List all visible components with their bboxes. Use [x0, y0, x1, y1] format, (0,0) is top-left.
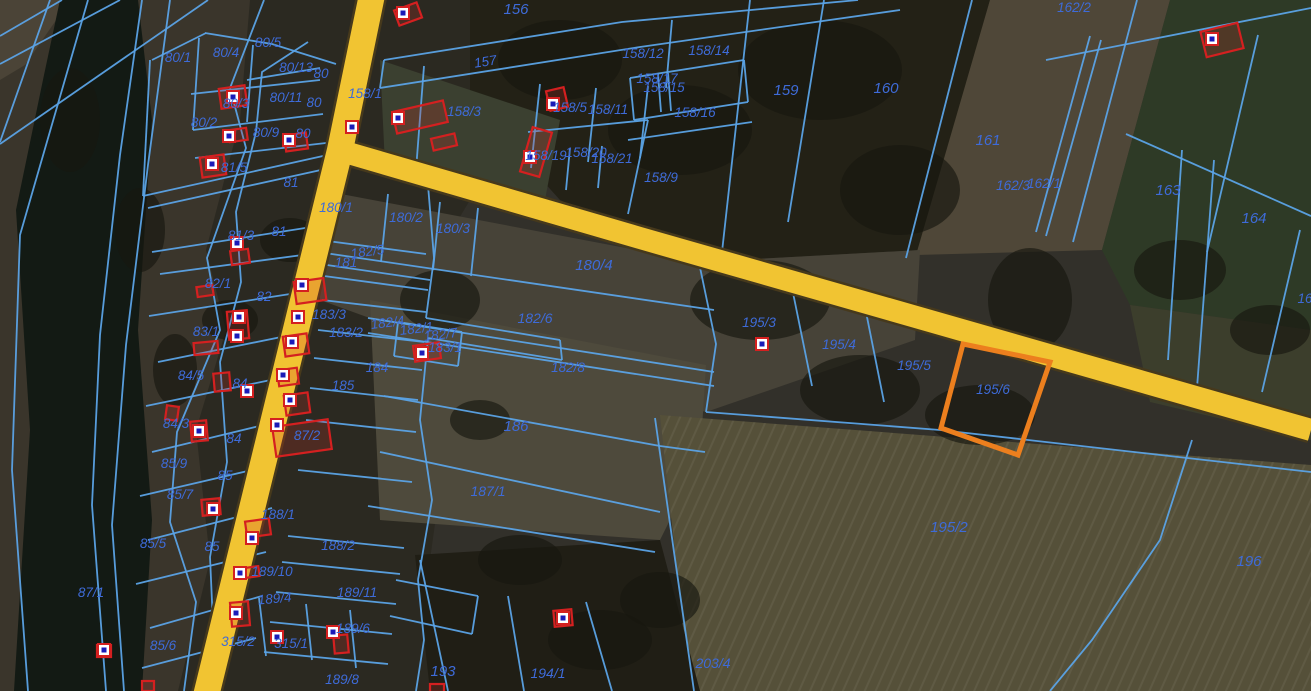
building-marker-icon[interactable]	[756, 338, 768, 350]
map-canvas[interactable]: 156157158/1158/3158/5158/11158/12158/141…	[0, 0, 1311, 691]
building-marker-icon[interactable]	[193, 425, 205, 437]
building-outline	[430, 684, 444, 691]
parcel-label: 189/10	[251, 564, 293, 579]
parcel-label: 80	[295, 126, 311, 141]
marker-dot	[350, 125, 355, 130]
building-marker-icon[interactable]	[557, 612, 569, 624]
parcel-label: 195/2	[930, 519, 968, 536]
building-marker-icon[interactable]	[1206, 33, 1218, 45]
marker-dot	[290, 340, 295, 345]
parcel-label: 315/1	[274, 636, 308, 651]
parcel-label: 80	[306, 95, 322, 110]
marker-dot	[288, 398, 293, 403]
terrain-patch	[660, 415, 1311, 691]
building-marker-icon[interactable]	[397, 7, 409, 19]
parcel-label: 84	[226, 431, 241, 446]
parcel-label: 87/1	[78, 585, 104, 600]
marker-dot	[300, 283, 305, 288]
parcel-label: 83/1	[193, 324, 219, 339]
marker-dot	[250, 536, 255, 541]
parcel-label: 159	[773, 82, 799, 99]
parcel-label: 84/3	[163, 416, 190, 431]
building-marker-icon[interactable]	[416, 347, 428, 359]
tree-blob	[738, 20, 902, 120]
parcel-label: 80/11	[270, 90, 303, 105]
parcel-label: 162/2	[1057, 0, 1091, 15]
building-outline	[230, 249, 250, 265]
parcel-label: 195/5	[897, 358, 931, 373]
building-marker-icon[interactable]	[292, 311, 304, 323]
building-marker-icon[interactable]	[296, 279, 308, 291]
parcel-label: 87/2	[294, 428, 321, 443]
parcel-label: 156	[503, 1, 529, 18]
parcel-label: 182/8	[551, 360, 585, 375]
parcel-label: 189/4	[257, 590, 292, 608]
parcel-label: 188/2	[321, 538, 355, 553]
parcel-label: 203/4	[694, 655, 730, 671]
tree-blob	[840, 145, 960, 235]
parcel-label: 180/3	[436, 221, 470, 236]
parcel-label: 80/13	[279, 60, 313, 75]
parcel-label: 158/16	[674, 105, 716, 120]
parcel-label: 158/19	[525, 148, 567, 163]
tree-blob	[1134, 240, 1226, 300]
parcel-label: 80/4	[213, 45, 239, 60]
building-marker-icon[interactable]	[206, 158, 218, 170]
parcel-label: 160	[873, 80, 899, 97]
building-marker-icon[interactable]	[284, 394, 296, 406]
parcel-label: 186	[503, 418, 529, 435]
parcel-label: 189/6	[336, 621, 370, 636]
parcel-label: 188/1	[261, 507, 295, 522]
parcel-label: 80/9	[253, 125, 280, 140]
parcel-label: 193	[430, 663, 456, 680]
building-marker-icon[interactable]	[234, 567, 246, 579]
parcel-label: 85	[217, 468, 233, 483]
parcel-label: 183/1	[428, 340, 462, 355]
parcel-label: 163	[1155, 182, 1181, 199]
marker-dot	[561, 616, 566, 621]
building-outline	[194, 341, 219, 355]
parcel-label: 85	[204, 539, 220, 554]
parcel-label: 85/7	[167, 487, 194, 502]
parcel-label: 162/3	[996, 178, 1030, 193]
building-marker-icon[interactable]	[230, 607, 242, 619]
parcel-label: 158/21	[591, 151, 632, 166]
parcel-label: 80/2	[191, 115, 218, 130]
marker-dot	[227, 134, 232, 139]
parcel-label: 194/1	[530, 665, 565, 681]
parcel-label: 315/2	[221, 634, 255, 649]
parcel-label: 82/1	[205, 276, 231, 291]
parcel-label: 80/5	[255, 35, 282, 50]
parcel-label: 158/15	[643, 80, 685, 95]
building-marker-icon[interactable]	[207, 503, 219, 515]
parcel-label: 84	[232, 376, 247, 391]
parcel-label: 158/9	[644, 170, 678, 185]
building-marker-icon[interactable]	[392, 112, 404, 124]
building-marker-icon[interactable]	[286, 336, 298, 348]
building-marker-icon[interactable]	[233, 311, 245, 323]
parcel-label: 180/2	[389, 210, 423, 225]
parcel-label: 158/12	[622, 46, 664, 61]
parcel-label: 158/3	[447, 104, 481, 119]
parcel-label: 180/4	[575, 257, 613, 274]
marker-dot	[234, 611, 239, 616]
parcel-label: 80/3	[223, 96, 250, 111]
parcel-label: 158/11	[588, 102, 628, 117]
building-marker-icon[interactable]	[223, 130, 235, 142]
marker-dot	[237, 315, 242, 320]
marker-dot	[1210, 37, 1215, 42]
marker-dot	[210, 162, 215, 167]
parcel-label: 184	[366, 360, 389, 375]
marker-dot	[396, 116, 401, 121]
parcel-label: 158/1	[348, 86, 382, 101]
parcel-label: 16	[1297, 291, 1311, 306]
building-marker-icon[interactable]	[271, 419, 283, 431]
parcel-label: 189/11	[337, 585, 377, 600]
parcel-label: 195/6	[976, 382, 1010, 397]
marker-dot	[275, 423, 280, 428]
parcel-label: 187/1	[470, 483, 505, 499]
parcel-label: 182/6	[517, 310, 552, 326]
marker-dot	[102, 648, 107, 653]
building-marker-icon[interactable]	[231, 330, 243, 342]
building-outline	[213, 372, 231, 391]
parcel-label: 162/1	[1027, 176, 1061, 191]
marker-dot	[296, 315, 301, 320]
marker-dot	[238, 571, 243, 576]
marker-dot	[211, 507, 216, 512]
parcel-label: 183/3	[312, 307, 346, 322]
marker-dot	[401, 11, 406, 16]
marker-dot	[287, 138, 292, 143]
marker-dot	[281, 373, 286, 378]
parcel-label: 81	[271, 224, 286, 239]
parcel-label: 164	[1241, 210, 1266, 227]
tree-blob	[450, 400, 510, 440]
marker-dot	[197, 429, 202, 434]
parcel-label: 158/5	[553, 100, 587, 115]
marker-dot	[760, 342, 765, 347]
parcel-label: 85/9	[161, 456, 188, 471]
parcel-label: 185	[332, 378, 355, 393]
parcel-label: 158/14	[688, 43, 729, 58]
parcel-label: 180/1	[319, 200, 353, 215]
parcel-label: 80/1	[165, 50, 191, 65]
parcel-label: 82	[256, 289, 272, 304]
parcel-label: 195/4	[822, 337, 856, 352]
marker-dot	[420, 351, 425, 356]
parcel-label: 189/8	[325, 672, 359, 687]
parcel-label: 195/3	[742, 315, 776, 330]
tree-blob	[40, 68, 100, 172]
parcel-label: 85/5	[140, 536, 167, 551]
parcel-label: 84/5	[178, 368, 205, 383]
parcel-label: 85/6	[150, 638, 177, 653]
tree-blob	[620, 572, 700, 628]
building-marker-icon[interactable]	[346, 121, 358, 133]
map-svg: 156157158/1158/3158/5158/11158/12158/141…	[0, 0, 1311, 691]
tree-blob	[478, 535, 562, 585]
marker-dot	[235, 334, 240, 339]
building-outline	[142, 681, 154, 691]
building-marker-icon[interactable]	[98, 644, 110, 656]
parcel-label: 81/5	[221, 160, 248, 175]
building-marker-icon[interactable]	[246, 532, 258, 544]
parcel-label: 161	[975, 132, 1000, 149]
parcel-label: 183/2	[329, 325, 363, 340]
tree-blob	[1230, 305, 1310, 355]
parcel-label: 81	[283, 175, 298, 190]
parcel-label: 81/3	[228, 228, 255, 243]
building-marker-icon[interactable]	[283, 134, 295, 146]
marker-dot	[331, 630, 336, 635]
parcel-label: 196	[1236, 553, 1262, 570]
parcel-label: 80	[313, 66, 329, 81]
building-marker-icon[interactable]	[277, 369, 289, 381]
